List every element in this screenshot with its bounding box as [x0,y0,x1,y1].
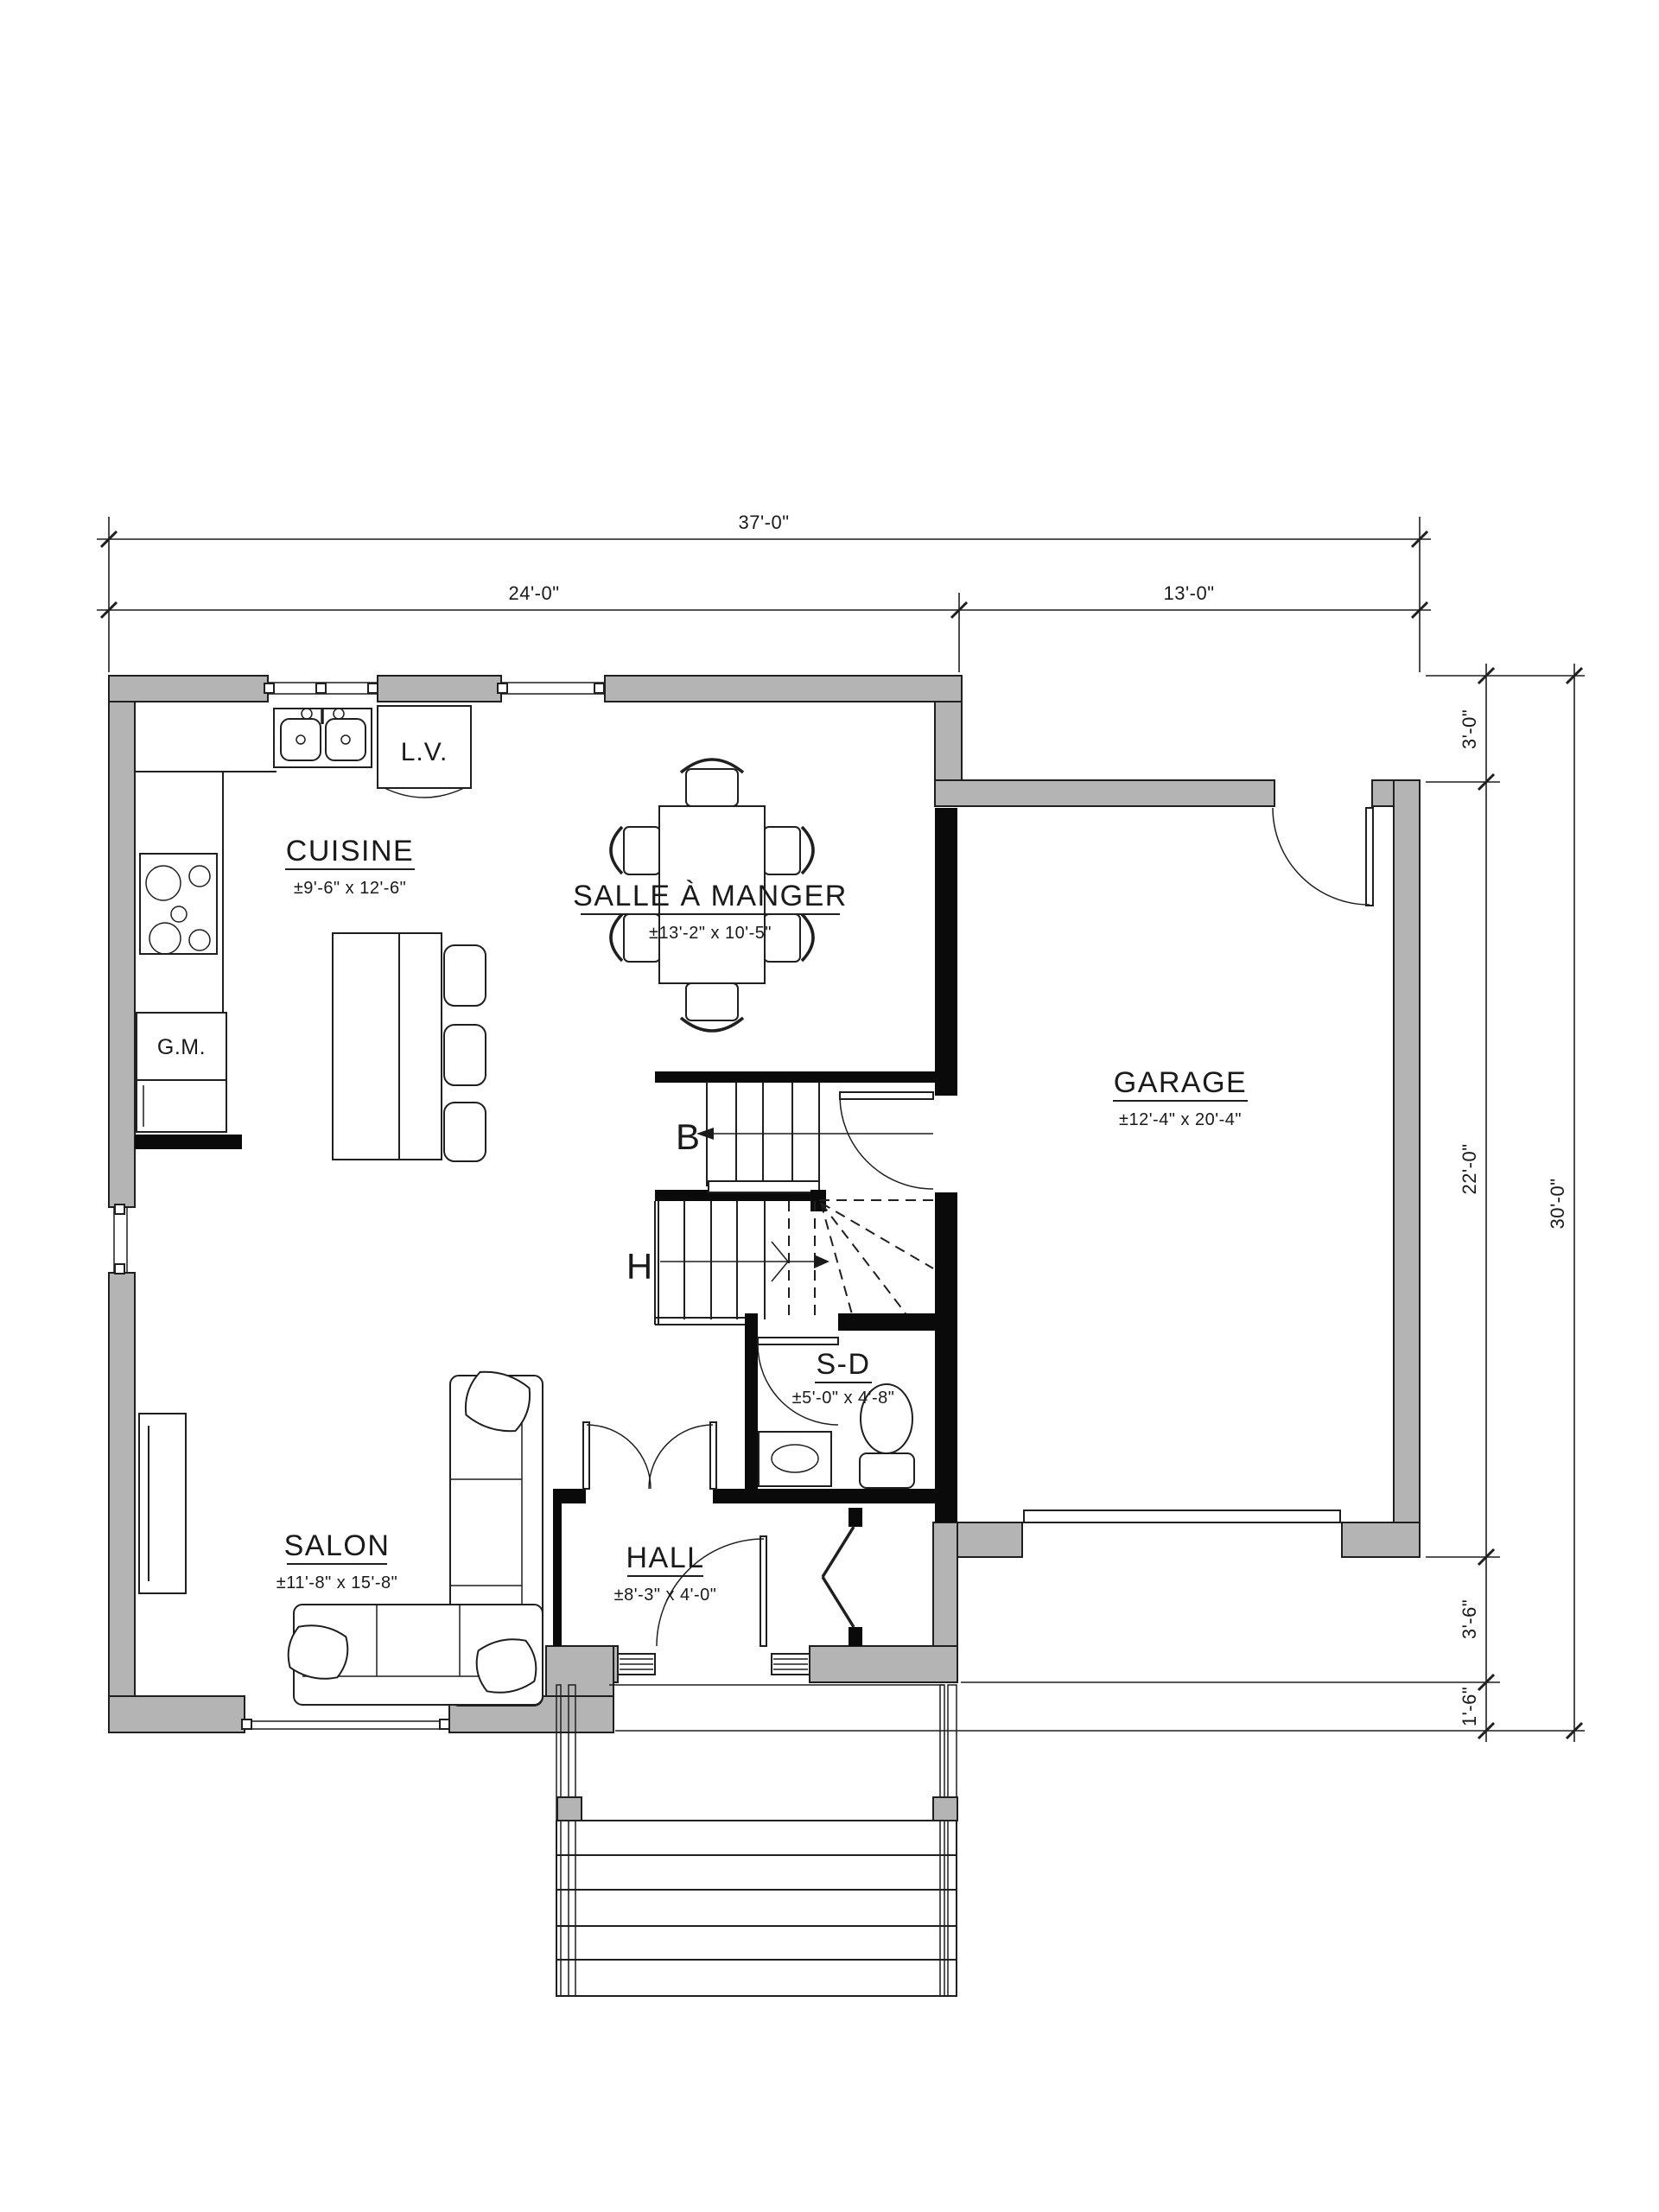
island-stool [444,1103,486,1161]
wall-left-upper [109,676,135,1207]
pantry: G.M. [137,1013,226,1080]
garage-side-door [1273,808,1373,906]
porch-post-left [557,1797,582,1821]
porch-post-right [933,1797,957,1821]
dishwasher-label: L.V. [401,738,448,766]
wall-hall-top-left [553,1489,586,1503]
dim-top-split: 24'-0" 13'-0" [97,582,1431,618]
wall-garage-right [1394,780,1420,1557]
garage-overhead-door [1022,1510,1342,1557]
interior-walls [135,808,957,1646]
dining-chair [686,769,738,806]
dim-label-13: 13'-0" [1163,582,1214,604]
stair-down-label: B [676,1116,700,1157]
porch-rail-right-outer [948,1685,957,1996]
salon-front-window [242,1719,449,1729]
label-hall: HALL ±8'-3" x 4'-0" [614,1541,717,1605]
wall-top-1 [109,676,268,702]
refrigerator [137,1080,226,1132]
salle-eau-dims: ±5'-0" x 4'-8" [792,1389,895,1408]
label-cuisine: CUISINE ±9'-6" x 12'-6" [285,835,415,898]
salon-left-window [114,1205,127,1274]
wall-closet-jamb-top [849,1508,862,1527]
wall-salon-hall-partition [553,1502,562,1646]
dim-label-1-6: 1'-6" [1459,1687,1480,1726]
kitchen-island [333,933,486,1161]
dim-label-3-0: 3'-0" [1459,709,1480,749]
kitchen-sink [274,709,372,767]
dim-label-3-6: 3'-6" [1459,1599,1480,1639]
wall-closet-jamb-bottom [849,1627,862,1646]
label-salle-eau: S-D ±5'-0" x 4'-8" [792,1348,895,1408]
stair-h-arrow [814,1255,829,1268]
stair-up [655,1201,829,1325]
garage-name: GARAGE [1114,1066,1247,1099]
wall-kitchen-salon-stub [135,1135,242,1149]
stair-up-label: H [626,1246,652,1287]
dishwasher: L.V. [378,706,471,798]
dining-chair-back [611,914,622,961]
dim-label-24: 24'-0" [508,582,559,604]
dining-chair [764,827,800,874]
front-porch [556,1685,957,1996]
wall-garage-top-1 [935,780,1274,806]
porch-rail-right-inner [940,1685,944,1996]
porch-steps [556,1821,957,1996]
wall-top-3 [605,676,962,702]
wall-top-2 [378,676,501,702]
dining-chair [686,983,738,1020]
salle-a-manger-name: SALLE À MANGER [573,880,848,912]
kitchen-window [264,683,378,694]
island-stool [444,1025,486,1085]
salle-eau-name: S-D [816,1348,870,1381]
salon-dims: ±11'-8" x 15'-8" [276,1573,398,1592]
closet-bifold-door [823,1527,854,1627]
dining-chair-back [611,827,622,874]
double-door-swing-right [649,1425,713,1489]
garage-side-leaf [1366,808,1373,906]
label-salon: SALON ±11'-8" x 15'-8" [276,1529,398,1592]
salon-name: SALON [284,1529,391,1562]
dining-window [498,683,605,694]
dining-chair [624,827,660,874]
dim-top-total: 37'-0" [97,512,1431,547]
stair-winders [819,1200,935,1320]
floor-plan-svg: L.V. G.M. [0,0,1659,2212]
double-door-leaf-right [710,1422,716,1489]
wall-hall-front-2 [810,1646,957,1682]
hall-double-doors [583,1422,716,1489]
garage-door-panel [1024,1510,1340,1522]
wall-garage-step [935,702,962,784]
tv-console [139,1414,186,1593]
wall-sd-top-right [838,1313,935,1331]
label-garage: GARAGE ±12'-4" x 20'-4" [1113,1066,1248,1129]
wall-left-lower [109,1273,135,1732]
dim-label-30-0: 30'-0" [1547,1178,1568,1229]
dining-chair-back [802,914,813,961]
wall-stair-top [655,1071,935,1083]
dim-label-22-0: 22'-0" [1459,1143,1480,1194]
wall-sd-bottom [713,1489,935,1503]
wall-salon-front-1 [109,1696,245,1732]
stove [140,854,217,954]
hall-dims: ±8'-3" x 4'-0" [614,1586,717,1605]
front-door-leaf [760,1536,766,1646]
stair-landing-rail [709,1181,819,1192]
wall-garage-front-2 [1342,1522,1420,1557]
dim-label-37: 37'-0" [738,512,789,533]
vanity-sink [759,1432,831,1486]
sd-door-leaf [758,1338,838,1344]
wall-garage-divider-upper [935,808,957,1096]
garage-entry-door [840,1092,933,1189]
dim-right-total: 30'-0" [1547,664,1582,1742]
garage-dims: ±12'-4" x 20'-4" [1119,1110,1242,1129]
salle-a-manger-dims: ±13'-2" x 10'-5" [649,924,772,943]
dining-chair-back [802,827,813,874]
label-salle-a-manger: SALLE À MANGER ±13'-2" x 10'-5" [573,880,848,943]
garage-entry-leaf [840,1092,933,1099]
cuisine-name: CUISINE [286,835,414,868]
garage-entry-swing [840,1096,933,1189]
pantry-label: G.M. [157,1035,206,1059]
kitchen-fixtures: L.V. G.M. [135,706,486,1161]
dim-right-chain: 3'-0" 22'-0" 3'-6" 1'-6" [1459,664,1494,1742]
double-door-swing-left [587,1425,651,1489]
cuisine-dims: ±9'-6" x 12'-6" [294,879,406,898]
island-stool [444,945,486,1006]
floor-plan-page: L.V. G.M. [0,0,1659,2212]
wall-sd-top-left [745,1313,758,1331]
wall-sd-left [745,1331,758,1503]
double-door-leaf-left [583,1422,589,1489]
hall-name: HALL [626,1541,704,1574]
wall-garage-divider-lower [935,1192,957,1522]
garage-side-swing [1273,808,1370,905]
